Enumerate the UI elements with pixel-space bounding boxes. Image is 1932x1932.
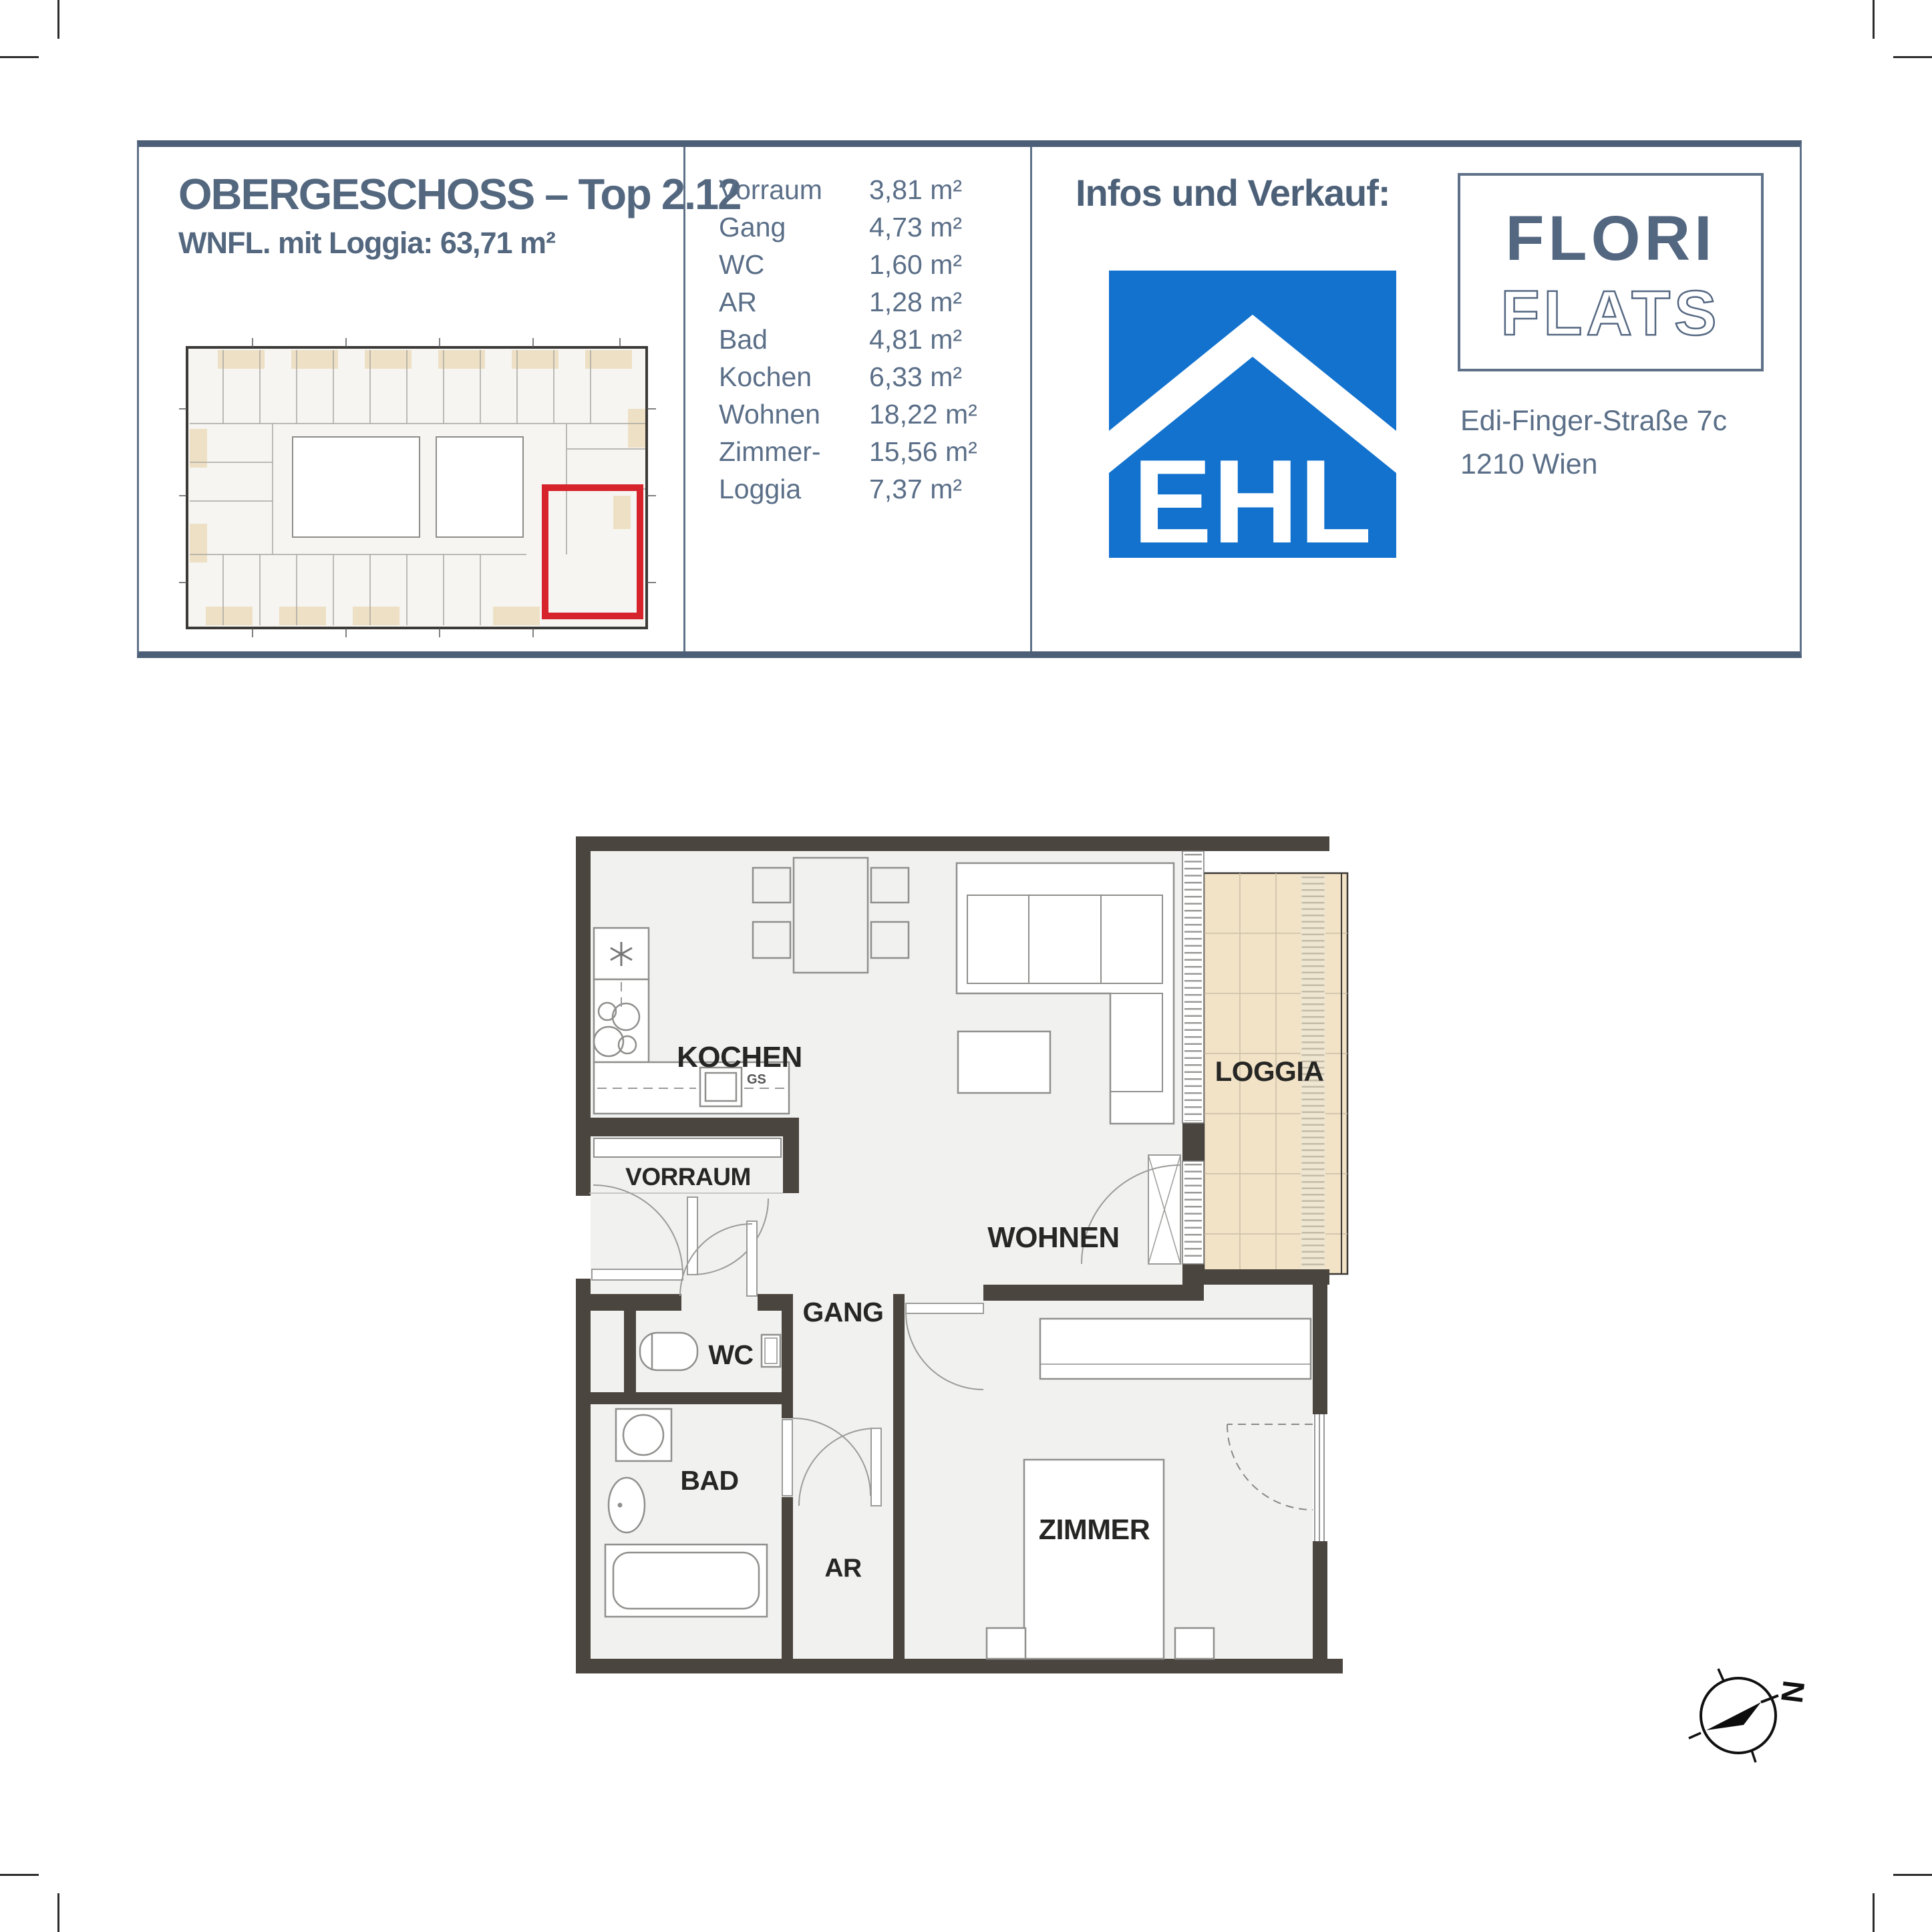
room-area: 4,73 m² — [869, 212, 1013, 243]
crop-mark — [0, 56, 39, 58]
crop-mark — [1873, 0, 1875, 39]
room-label-ar: AR — [824, 1554, 862, 1583]
area-row: Kochen6,33 m² — [719, 358, 1013, 395]
room-label-kochen: KOCHEN — [677, 1041, 802, 1074]
room-area: 18,22 m² — [869, 399, 1013, 430]
room-label-wc: WC — [708, 1339, 753, 1370]
room-label-vorraum: VORRAUM — [625, 1163, 751, 1190]
overview-floorplan — [179, 329, 659, 639]
sales-address: Edi-Finger-Straße 7c 1210 Wien — [1460, 399, 1727, 487]
overview-courtyard — [293, 437, 420, 537]
dishwasher-label: GS — [747, 1072, 766, 1087]
flori-logo-text: FLORI — [1506, 203, 1716, 274]
room-label: Gang — [719, 212, 869, 243]
area-table: Vorraum3,81 m² Gang4,73 m² WC1,60 m² AR1… — [719, 171, 1013, 508]
room-label-wohnen: WOHNEN — [987, 1221, 1119, 1254]
compass-icon: N — [1659, 1635, 1820, 1796]
crop-mark — [57, 1893, 59, 1932]
area-row: Vorraum3,81 m² — [719, 171, 1013, 208]
compass-needle — [1706, 1702, 1761, 1730]
room-area: 3,81 m² — [869, 174, 1013, 206]
address-line1: Edi-Finger-Straße 7c — [1460, 399, 1727, 443]
room-area: 4,81 m² — [869, 324, 1013, 355]
address-line2: 1210 Wien — [1460, 443, 1727, 486]
page: { "header": { "title": "OBERGESCHOSS – T… — [0, 0, 1932, 1932]
area-row: Gang4,73 m² — [719, 208, 1013, 246]
crop-mark — [1873, 1893, 1875, 1932]
room-label-gang: GANG — [803, 1297, 884, 1327]
area-row: AR1,28 m² — [719, 283, 1013, 321]
room-label-zimmer: ZIMMER — [1039, 1514, 1150, 1546]
sales-heading: Infos und Verkauf: — [1076, 171, 1390, 214]
header-divider — [1030, 147, 1032, 651]
header-divider — [683, 147, 685, 651]
room-area: 7,37 m² — [869, 474, 1013, 505]
room-area: 6,33 m² — [869, 361, 1013, 393]
page-title: OBERGESCHOSS – Top 2.12 — [178, 169, 740, 219]
crop-mark — [1893, 1874, 1932, 1876]
flats-logo-text: FLATS — [1500, 278, 1720, 349]
ehl-logo-text: EHL — [1133, 435, 1373, 558]
coffee-table — [958, 1031, 1050, 1093]
room-label: Zimmer- — [719, 436, 869, 468]
area-row: WC1,60 m² — [719, 246, 1013, 283]
room-area: 15,56 m² — [869, 436, 1013, 468]
area-row: Zimmer-15,56 m² — [719, 433, 1013, 470]
area-row: Wohnen18,22 m² — [719, 395, 1013, 433]
entry-door-opening — [576, 1196, 591, 1279]
crop-mark — [0, 1874, 39, 1876]
room-label: Wohnen — [719, 399, 869, 430]
room-label: WC — [719, 249, 869, 281]
room-area: 1,60 m² — [869, 249, 1013, 281]
compass-north-label: N — [1774, 1679, 1812, 1705]
header-box: OBERGESCHOSS – Top 2.12 WNFL. mit Loggia… — [137, 140, 1802, 658]
loggia-glazing — [1182, 851, 1204, 1264]
page-subtitle: WNFL. mit Loggia: 63,71 m² — [178, 226, 555, 261]
area-row: Bad4,81 m² — [719, 321, 1013, 358]
room-label: Loggia — [719, 474, 869, 505]
room-label-bad: BAD — [680, 1465, 738, 1496]
room-label: Vorraum — [719, 174, 869, 206]
overview-courtyard — [436, 437, 523, 537]
crop-mark — [1893, 56, 1932, 58]
room-label: AR — [719, 287, 869, 318]
apartment-floorplan: GS — [576, 836, 1353, 1680]
room-label-loggia: LOGGIA — [1215, 1056, 1324, 1087]
room-label: Kochen — [719, 361, 869, 393]
ehl-logo: EHL — [1109, 271, 1396, 558]
room-label: Bad — [719, 324, 869, 355]
vorraum-closet — [594, 1138, 781, 1157]
area-row: Loggia7,37 m² — [719, 470, 1013, 508]
crop-mark — [57, 0, 59, 39]
room-area: 1,28 m² — [869, 287, 1013, 318]
flori-flats-logo: FLORI FLATS — [1458, 173, 1764, 371]
